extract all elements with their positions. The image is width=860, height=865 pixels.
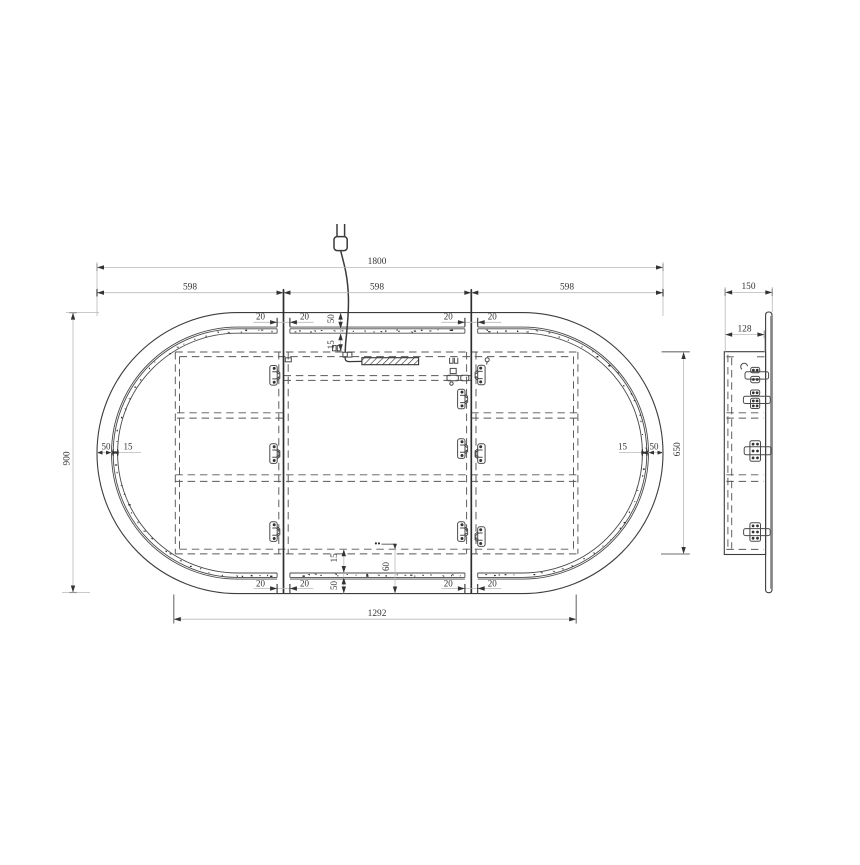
svg-text:15: 15 <box>124 442 134 452</box>
svg-text:15: 15 <box>326 340 336 350</box>
svg-text:50: 50 <box>102 442 112 452</box>
svg-text:20: 20 <box>256 312 266 322</box>
svg-text:128: 128 <box>737 324 751 334</box>
svg-text:20: 20 <box>444 578 454 588</box>
svg-text:598: 598 <box>560 283 574 293</box>
svg-text:598: 598 <box>183 283 197 293</box>
svg-text:1800: 1800 <box>368 257 387 267</box>
svg-text:15: 15 <box>329 553 339 563</box>
svg-text:900: 900 <box>63 451 73 465</box>
svg-text:15: 15 <box>618 442 628 452</box>
svg-text:150: 150 <box>741 282 755 292</box>
svg-text:60: 60 <box>381 562 391 572</box>
svg-text:20: 20 <box>488 312 498 322</box>
svg-text:1292: 1292 <box>368 609 387 619</box>
svg-text:50: 50 <box>650 442 660 452</box>
svg-text:20: 20 <box>444 312 454 322</box>
svg-text:20: 20 <box>300 312 310 322</box>
svg-text:50: 50 <box>329 581 339 591</box>
svg-text:598: 598 <box>370 283 384 293</box>
svg-text:20: 20 <box>256 578 266 588</box>
svg-text:20: 20 <box>300 578 310 588</box>
svg-text:20: 20 <box>488 578 498 588</box>
svg-text:50: 50 <box>326 314 336 324</box>
svg-text:650: 650 <box>673 442 683 456</box>
